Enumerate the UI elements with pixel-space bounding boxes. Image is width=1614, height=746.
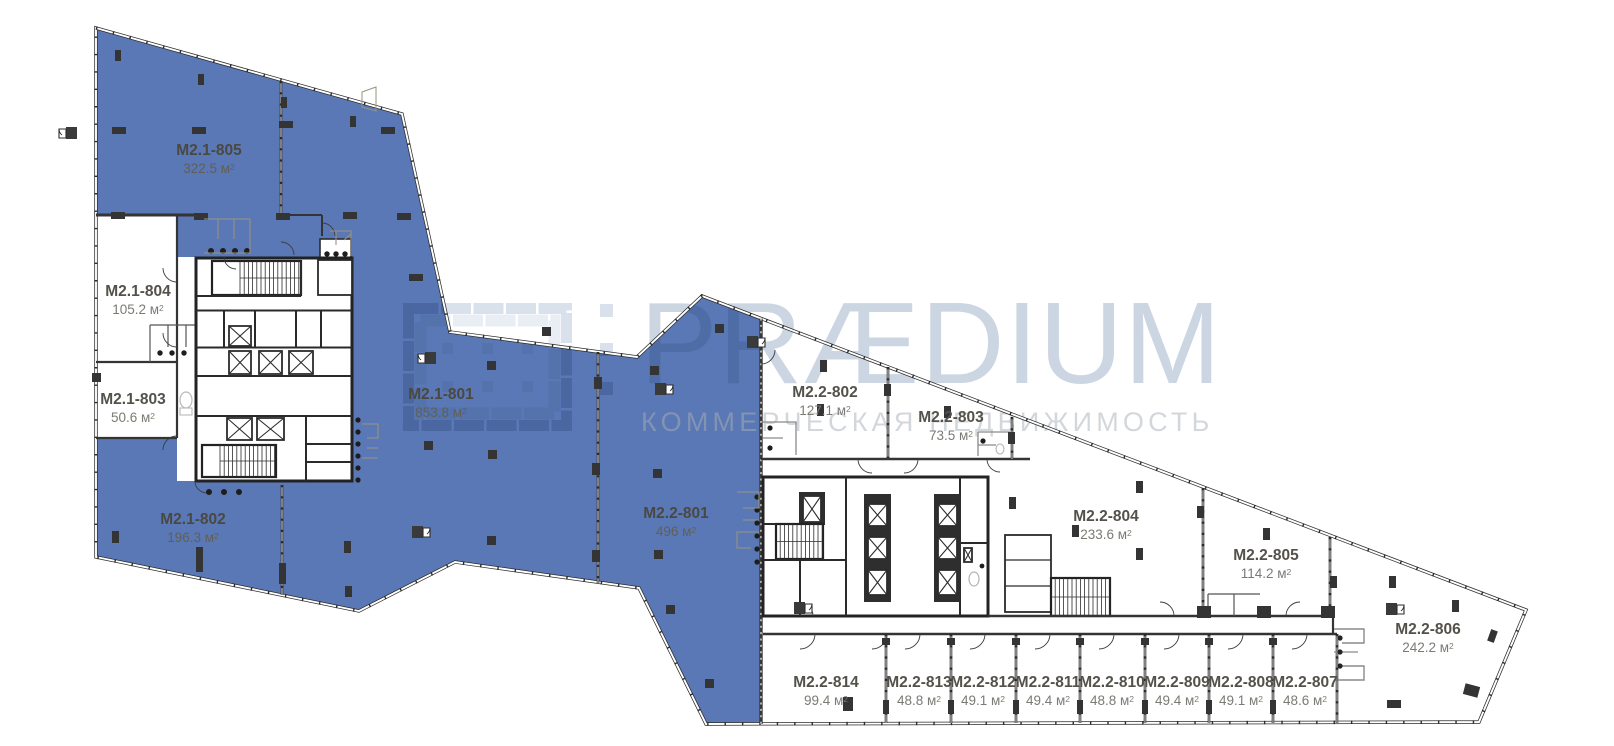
svg-text:M2.1-805: M2.1-805 [176,142,242,159]
svg-text:48.8 м2: 48.8 м2 [897,693,941,708]
svg-text:48.6 м2: 48.6 м2 [1283,693,1327,708]
svg-text:48.8 м2: 48.8 м2 [1090,693,1134,708]
svg-text:M2.2-813: M2.2-813 [886,674,952,691]
svg-text:49.1 м2: 49.1 м2 [961,693,1005,708]
svg-text:M2.2-809: M2.2-809 [1144,674,1210,691]
svg-text:M2.2-805: M2.2-805 [1233,547,1299,564]
svg-text:M2.2-801: M2.2-801 [643,505,709,522]
svg-text:M2.2-814: M2.2-814 [793,674,859,691]
svg-text:M2.2-804: M2.2-804 [1073,508,1139,525]
svg-text:73.5 м2: 73.5 м2 [929,428,973,443]
svg-text:M2.1-801: M2.1-801 [408,386,474,403]
svg-text:M2.2-806: M2.2-806 [1395,621,1461,638]
svg-text:127.1 м2: 127.1 м2 [799,403,851,418]
svg-text:M2.2-803: M2.2-803 [918,409,984,426]
svg-text:242.2 м2: 242.2 м2 [1402,640,1454,655]
svg-text:49.4 м2: 49.4 м2 [1155,693,1199,708]
svg-text:114.2 м2: 114.2 м2 [1241,566,1292,581]
svg-text:233.6 м2: 233.6 м2 [1080,527,1132,542]
svg-text:M2.2-812: M2.2-812 [950,674,1015,691]
svg-text:M2.2-811: M2.2-811 [1016,674,1081,691]
svg-text:M2.1-803: M2.1-803 [100,391,166,408]
svg-text:M2.2-808: M2.2-808 [1208,674,1274,691]
svg-text:49.1 м2: 49.1 м2 [1219,693,1263,708]
svg-text:M2.2-807: M2.2-807 [1272,674,1337,691]
svg-text:49.4 м2: 49.4 м2 [1026,693,1070,708]
svg-text:99.4 м2: 99.4 м2 [804,693,848,708]
svg-text:M2.1-802: M2.1-802 [160,511,225,528]
svg-text:196.3 м2: 196.3 м2 [167,530,219,545]
svg-text:322.5 м2: 322.5 м2 [183,161,235,176]
svg-text:105.2 м2: 105.2 м2 [112,302,164,317]
svg-text:M2.2-802: M2.2-802 [792,384,857,401]
svg-text:853.8 м2: 853.8 м2 [415,405,467,420]
svg-text:50.6 м2: 50.6 м2 [111,410,155,425]
svg-text:496 м2: 496 м2 [656,524,697,539]
svg-text:M2.2-810: M2.2-810 [1079,674,1144,691]
svg-text:M2.1-804: M2.1-804 [105,283,171,300]
